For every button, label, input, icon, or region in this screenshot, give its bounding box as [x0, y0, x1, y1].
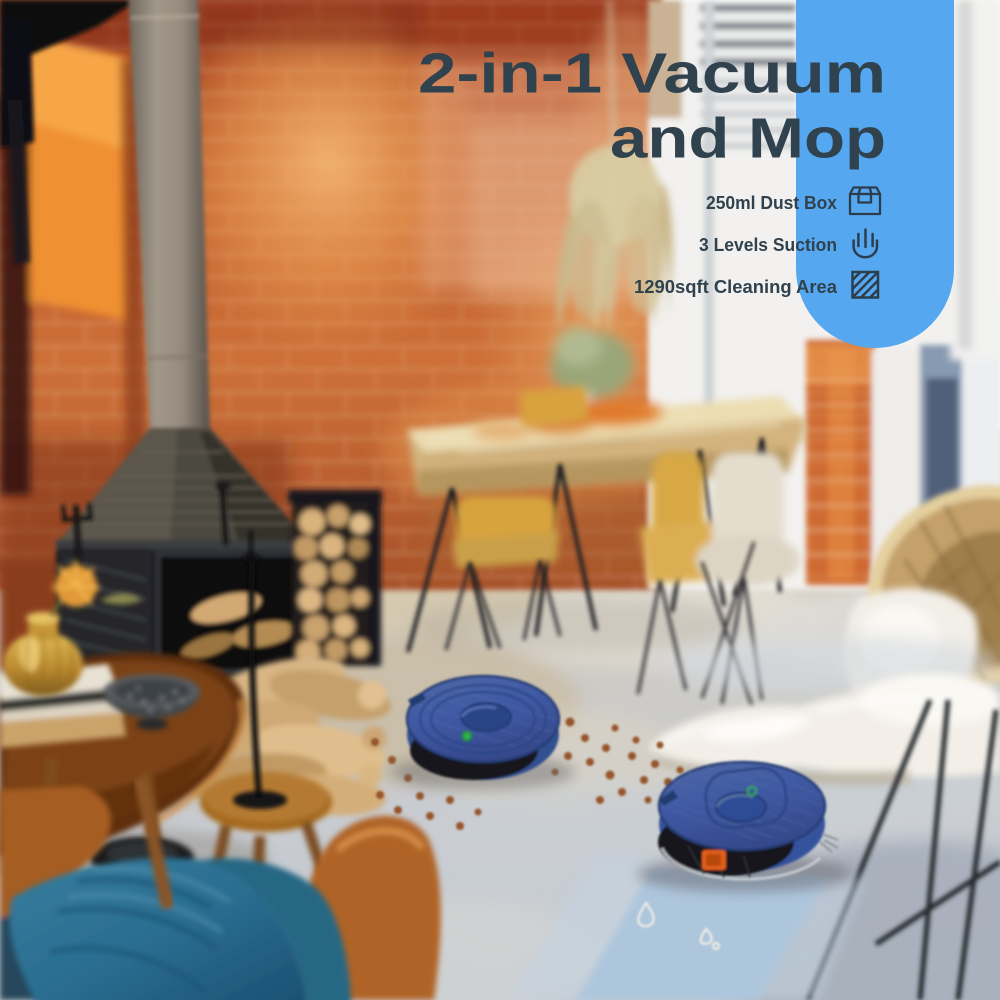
svg-text:2-in-1 Vacuum: 2-in-1 Vacuum	[418, 42, 886, 106]
svg-text:3 Levels Suction: 3 Levels Suction	[699, 234, 837, 255]
svg-text:250ml Dust Box: 250ml Dust Box	[706, 192, 838, 213]
svg-text:1290sqft Cleaning Area: 1290sqft Cleaning Area	[634, 276, 838, 297]
svg-text:and Mop: and Mop	[610, 107, 886, 171]
